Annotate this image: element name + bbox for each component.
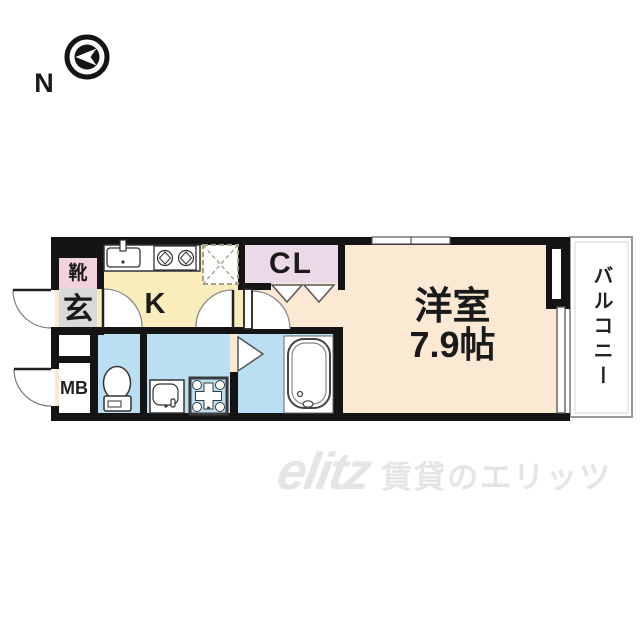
- kitchen-label: K: [133, 288, 177, 320]
- meter-box-door: [14, 369, 51, 406]
- main-room-name: 洋室: [350, 288, 555, 326]
- main-room-label: 洋室 7.9帖: [350, 288, 555, 364]
- main-room-window: [372, 237, 450, 244]
- entrance-label: 玄: [59, 289, 97, 331]
- stove-icon: [154, 246, 196, 270]
- kitchen-counter: [104, 240, 200, 271]
- washing-machine-pan-icon: [190, 378, 227, 414]
- bathtub-icon: [284, 336, 333, 413]
- meter-box-label: MB: [55, 376, 93, 400]
- floorplan-image: N 靴 玄 MB K CL 洋室 7.9帖 バルコニー elitz 賃貸のエリッ…: [0, 0, 640, 640]
- north-arrow-icon: [67, 37, 107, 77]
- main-room-size: 7.9帖: [350, 326, 555, 364]
- north-label: N: [29, 68, 59, 98]
- entrance-door: [13, 290, 51, 328]
- balcony-label: バルコニー: [570, 240, 632, 414]
- toilet-icon: [104, 367, 132, 412]
- balcony-sliding-door: [557, 307, 565, 413]
- shoe-cabinet-label: 靴: [59, 258, 97, 288]
- closet-label: CL: [244, 246, 338, 282]
- vanity-sink-icon: [150, 380, 184, 413]
- refrigerator-space: [203, 245, 238, 284]
